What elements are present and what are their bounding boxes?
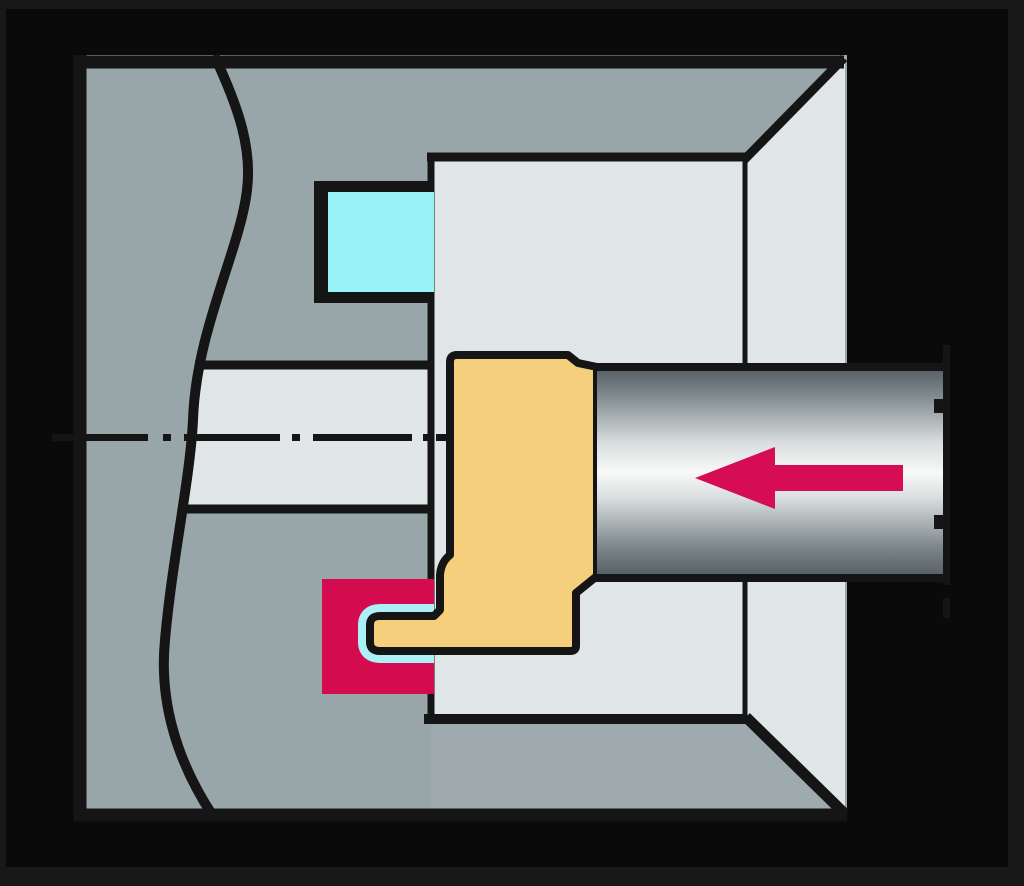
illustration-canvas [0,0,1024,886]
centerline-dash [436,434,449,441]
shank-break-notch-upper [934,399,944,413]
centerline-dash [184,434,280,441]
centerline [52,434,449,441]
centerline-dash [313,434,412,441]
centerline-dot [163,434,171,441]
recess-highlight [328,192,434,292]
shank-break-notch-lower [934,515,944,529]
centerline-dot [423,434,431,441]
centerline-dot [292,434,300,441]
shank-break-bar [943,345,950,585]
shank-break-tick [943,598,950,618]
centerline-dash [52,434,148,441]
shank-top-edge [594,363,950,371]
cutaway-diagram [0,0,1024,886]
shank-bottom-edge [594,574,950,582]
